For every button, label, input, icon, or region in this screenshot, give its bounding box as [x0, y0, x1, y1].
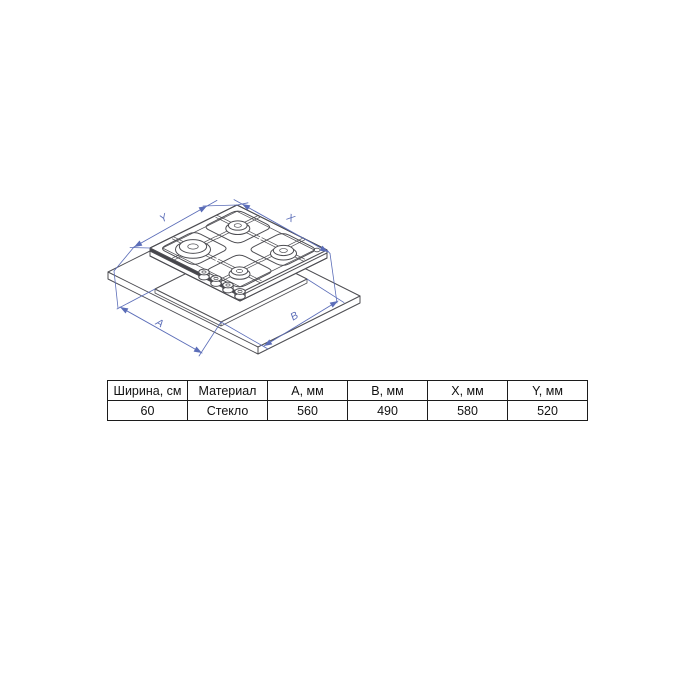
- table-header-cell: Ширина, см: [108, 381, 188, 401]
- table-header-cell: Материал: [188, 381, 268, 401]
- table-header-row: Ширина, смМатериалA, ммB, ммX, ммY, мм: [108, 381, 588, 401]
- table-header-cell: Y, мм: [508, 381, 588, 401]
- table-header-cell: B, мм: [348, 381, 428, 401]
- table-header-cell: X, мм: [428, 381, 508, 401]
- table-value-row: 60Стекло560490580520: [108, 401, 588, 421]
- table-value-cell: 580: [428, 401, 508, 421]
- diagram-linework: [108, 200, 360, 356]
- table-value-cell: Стекло: [188, 401, 268, 421]
- table-value-cell: 60: [108, 401, 188, 421]
- table-header-cell: A, мм: [268, 381, 348, 401]
- page: Y X A B Ширина, смМатериалA, ммB, ммX, м…: [0, 0, 700, 700]
- table-value-cell: 560: [268, 401, 348, 421]
- dim-label-a: A: [153, 316, 166, 330]
- hob-isometric-diagram: Y X A B: [0, 0, 700, 700]
- dimensions-table: Ширина, смМатериалA, ммB, ммX, ммY, мм 6…: [107, 380, 588, 421]
- table-value-cell: 520: [508, 401, 588, 421]
- dim-label-x: X: [284, 211, 298, 226]
- dim-label-y: Y: [158, 211, 171, 225]
- table-value-cell: 490: [348, 401, 428, 421]
